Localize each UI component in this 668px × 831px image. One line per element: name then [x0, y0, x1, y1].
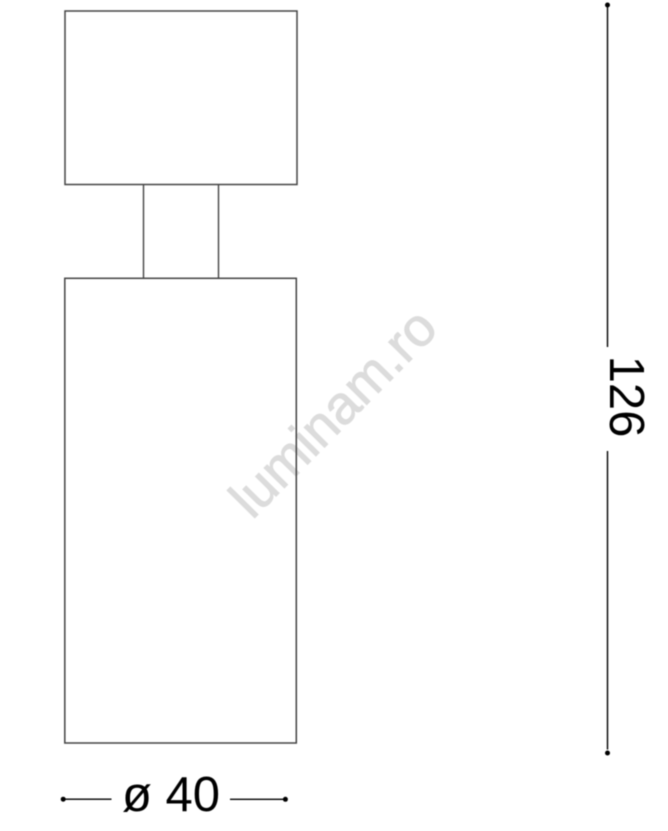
svg-text:126: 126: [599, 356, 653, 438]
svg-text:ø 40: ø 40: [122, 768, 220, 822]
